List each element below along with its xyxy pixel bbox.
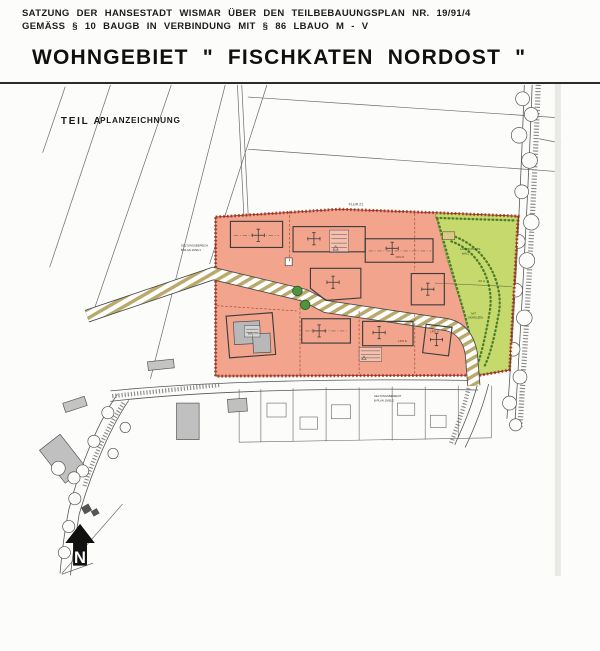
label-gehoelze-2: GEHÖLZEN [468,316,483,320]
document-header: SATZUNG DER HANSESTADT WISMAR ÜBER DEN T… [0,0,600,70]
satzung-line-2: GEMÄSS § 10 BAUGB IN VERBINDUNG MIT § 86… [22,20,600,33]
label-gehoelze-1: MIT [471,311,476,315]
label-scope-west-1: GELTUNGSBEREICH [181,244,208,248]
label-planzeichnung: PLANZEICHNUNG [100,116,181,125]
north-arrow-label: N [74,549,86,567]
label-landschaftswall-2: WALL [462,251,470,255]
label-lot-2: LPG 6. [398,339,407,343]
label-berm-height: 3,5 m [478,279,486,283]
satzung-line-1: SATZUNG DER HANSESTADT WISMAR ÜBER DEN T… [22,7,600,20]
label-lot-3: LPG 6 [430,330,439,334]
label-plot-note: WA [248,331,253,335]
plan-title: WOHNGEBIET " FISCHKATEN NORDOST " [32,46,600,70]
berm-detail-box [443,232,455,240]
label-landschaftswall-1: LANDSCHAFTS- [460,247,481,251]
plan-map: LANDSCHAFTS- WALL 3,5 m MIT GEHÖLZEN [0,84,600,650]
label-scope-south-1: GELTUNGSBEREICH [374,394,401,398]
label-scope-west-2: B-PLAN 19/91/1 [181,248,201,252]
label-scope-south-2: B-PLAN 19/91/2 [374,398,394,402]
label-teil-a: TEIL A [61,116,102,127]
road-sign-marker [285,258,292,266]
label-flur-21: FLUR 21 [349,203,364,207]
plan-document: SATZUNG DER HANSESTADT WISMAR ÜBER DEN T… [0,0,600,651]
label-lot-1: LPG 5 [396,255,405,259]
scan-edge [555,84,561,576]
